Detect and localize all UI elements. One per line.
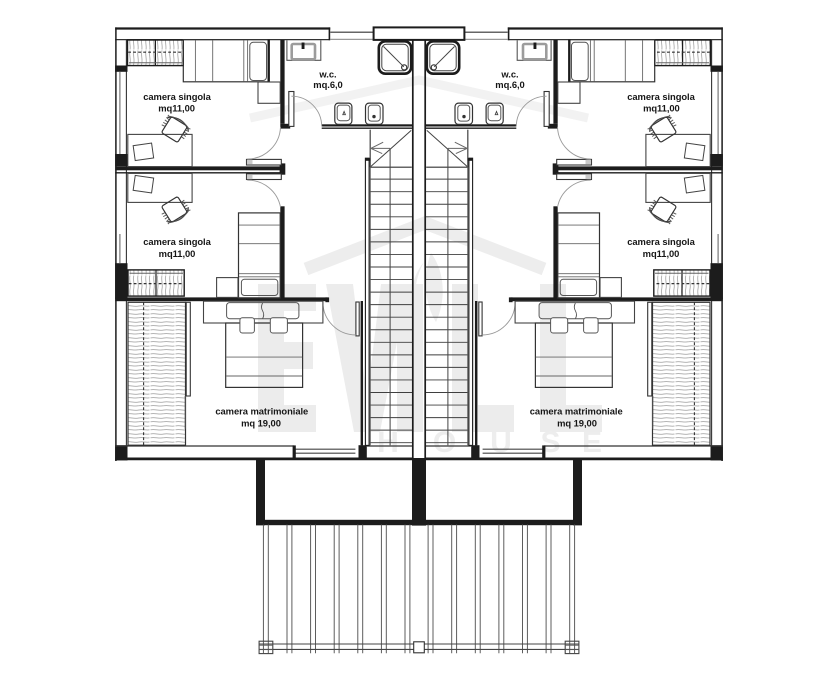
svg-text:mq 19,00: mq 19,00: [557, 417, 597, 428]
svg-text:w.c.: w.c.: [318, 69, 336, 80]
svg-text:E: E: [582, 426, 602, 459]
svg-text:mq.6,0: mq.6,0: [495, 79, 524, 90]
svg-text:camera singola: camera singola: [143, 236, 211, 247]
svg-text:camera matrimoniale: camera matrimoniale: [215, 405, 308, 416]
svg-text:mq11,00: mq11,00: [643, 103, 680, 114]
svg-text:mq11,00: mq11,00: [159, 248, 196, 259]
svg-text:mq11,00: mq11,00: [158, 103, 195, 114]
svg-text:camera matrimoniale: camera matrimoniale: [530, 405, 623, 416]
svg-text:mq11,00: mq11,00: [643, 248, 680, 259]
svg-text:U: U: [490, 426, 512, 459]
svg-text:camera singola: camera singola: [143, 91, 211, 102]
svg-text:w.c.: w.c.: [500, 69, 518, 80]
svg-text:mq 19,00: mq 19,00: [241, 417, 281, 428]
svg-text:camera singola: camera singola: [627, 91, 695, 102]
svg-text:camera singola: camera singola: [627, 236, 695, 247]
svg-text:mq.6,0: mq.6,0: [313, 79, 342, 90]
